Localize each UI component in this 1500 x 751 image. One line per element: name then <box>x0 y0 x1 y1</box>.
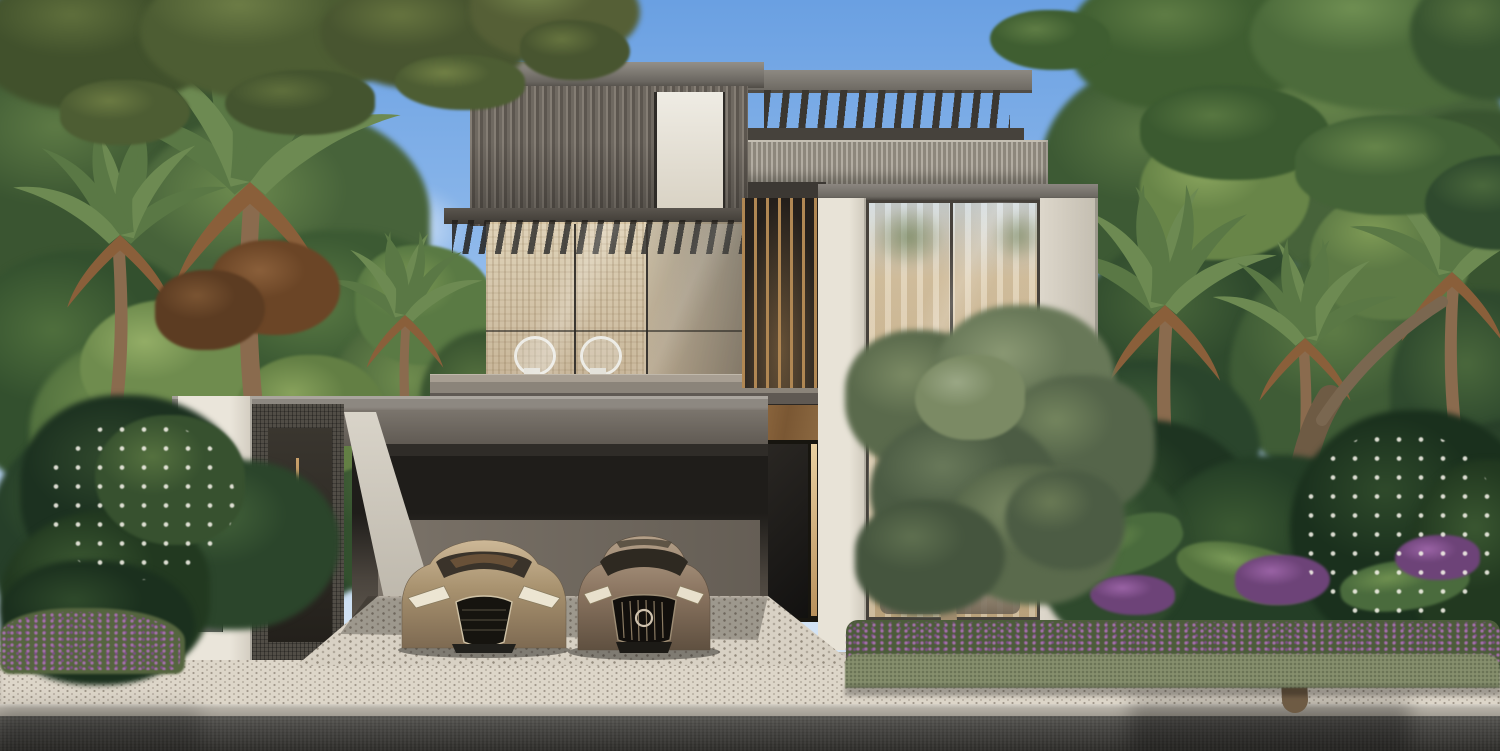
carport-fascia <box>340 410 768 446</box>
foliage-clump <box>520 20 630 80</box>
scene-architectural-rendering: 01 <box>0 0 1500 751</box>
window-third-floor <box>654 92 725 226</box>
white-flowers <box>1300 430 1500 630</box>
white-flowers <box>45 420 235 580</box>
balcony-railing-line <box>486 330 748 332</box>
balcony-glass <box>486 224 748 376</box>
foliage-clump <box>1005 470 1125 570</box>
balcony-glass-mullion <box>574 224 576 376</box>
foliage-clump <box>1090 575 1175 615</box>
foliage-clump <box>915 355 1025 440</box>
foliage-clump <box>395 55 525 110</box>
door-sidelight-right <box>811 444 817 616</box>
road-tree-shadow <box>0 706 200 751</box>
ribbed-parapet <box>736 140 1048 184</box>
foliage-clump <box>990 10 1110 70</box>
lavender-hedge <box>845 654 1500 688</box>
flower-bed-left-purple <box>0 612 180 670</box>
balcony-glass-mullion <box>646 224 648 376</box>
road-tree-shadow <box>1130 700 1410 751</box>
rooftop-pergola-slats <box>764 90 1010 130</box>
rooftop-roof-slab <box>728 70 1032 90</box>
bronze-slat-screen <box>742 198 820 388</box>
foliage-clump <box>225 70 375 135</box>
hedge-shadow <box>845 686 1500 696</box>
